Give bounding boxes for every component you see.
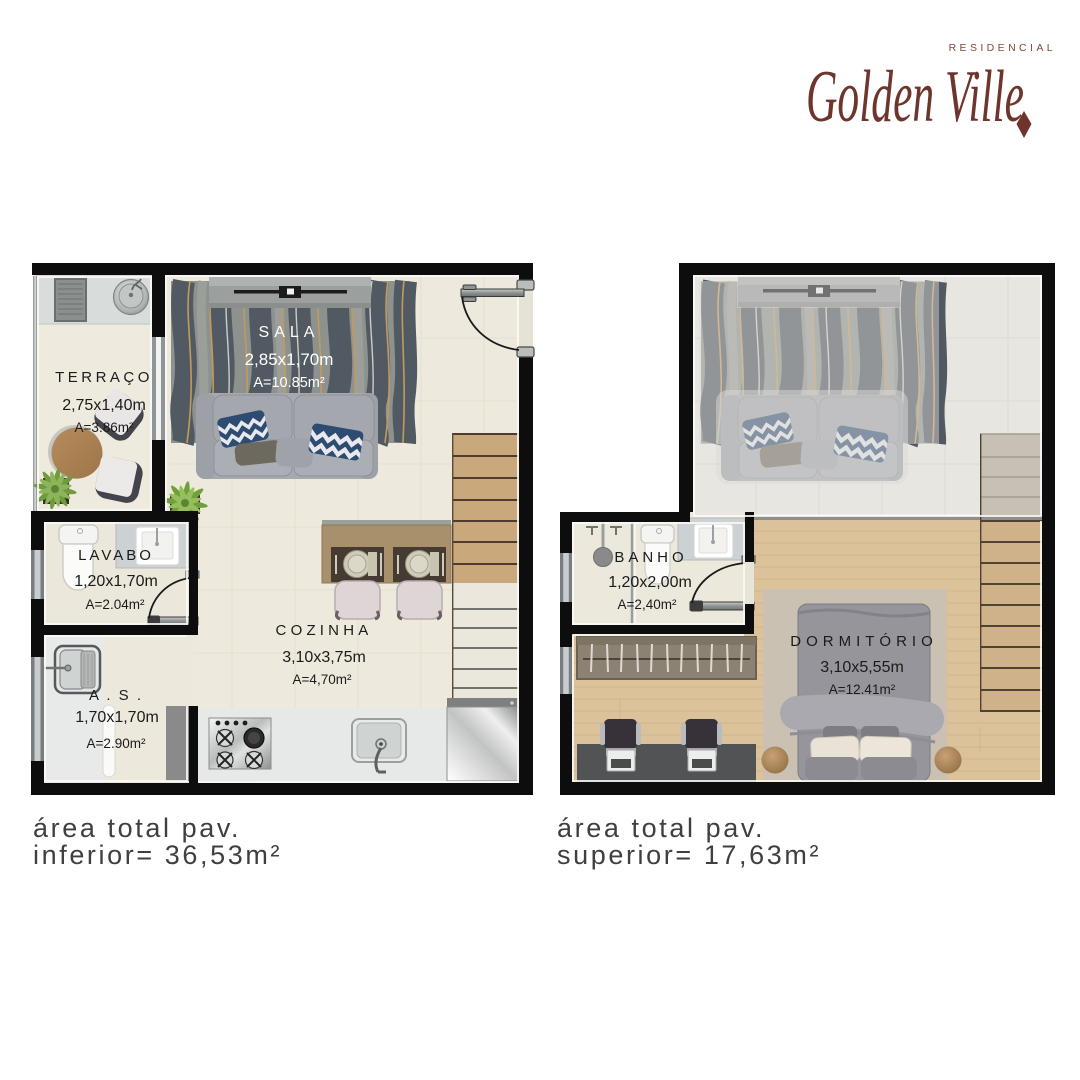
svg-text:A=2.04m²: A=2.04m² <box>86 597 145 612</box>
svg-text:1,20x1,70m: 1,20x1,70m <box>74 573 158 590</box>
svg-text:2,75x1,40m: 2,75x1,40m <box>62 397 146 414</box>
svg-text:A . S .: A . S . <box>89 687 143 704</box>
svg-text:Golden Ville: Golden Ville <box>806 56 1024 138</box>
svg-text:SALA: SALA <box>259 324 320 341</box>
svg-text:inferior= 36,53m²: inferior= 36,53m² <box>33 840 282 870</box>
svg-text:LAVABO: LAVABO <box>78 547 154 564</box>
svg-text:3,10x3,75m: 3,10x3,75m <box>282 649 366 666</box>
svg-text:2,85x1,70m: 2,85x1,70m <box>245 350 334 369</box>
svg-text:A=3.86m²: A=3.86m² <box>75 420 134 435</box>
svg-text:TERRAÇO: TERRAÇO <box>55 369 153 386</box>
svg-text:A=2.90m²: A=2.90m² <box>87 736 146 751</box>
svg-text:BANHO: BANHO <box>614 549 687 566</box>
svg-text:COZINHA: COZINHA <box>276 622 373 639</box>
svg-text:A=12.41m²: A=12.41m² <box>829 682 896 697</box>
svg-text:área total pav.: área total pav. <box>557 813 765 843</box>
svg-text:1,20x2,00m: 1,20x2,00m <box>608 574 692 591</box>
svg-text:3,10x5,55m: 3,10x5,55m <box>820 659 904 676</box>
svg-text:RESIDENCIAL: RESIDENCIAL <box>949 42 1056 54</box>
svg-text:superior= 17,63m²: superior= 17,63m² <box>557 840 821 870</box>
svg-text:DORMITÓRIO: DORMITÓRIO <box>790 633 938 650</box>
svg-text:A=10.85m²: A=10.85m² <box>253 375 325 391</box>
svg-text:A=4,70m²: A=4,70m² <box>293 672 352 687</box>
svg-text:área total pav.: área total pav. <box>33 813 241 843</box>
svg-text:A=2,40m²: A=2,40m² <box>618 597 677 612</box>
svg-text:1,70x1,70m: 1,70x1,70m <box>75 709 159 726</box>
